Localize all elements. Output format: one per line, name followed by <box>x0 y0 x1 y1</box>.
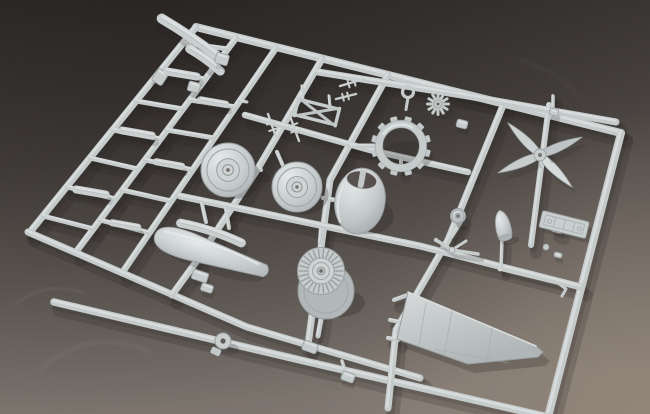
sprue-photograph <box>0 0 650 414</box>
attachment-stub <box>319 229 321 243</box>
attachment-stub <box>328 95 330 106</box>
attachment-stub <box>301 85 303 100</box>
small-round-part <box>543 244 549 250</box>
attachment-stub <box>351 145 374 146</box>
attachment-stub <box>552 95 553 108</box>
photo-stage <box>0 0 650 414</box>
